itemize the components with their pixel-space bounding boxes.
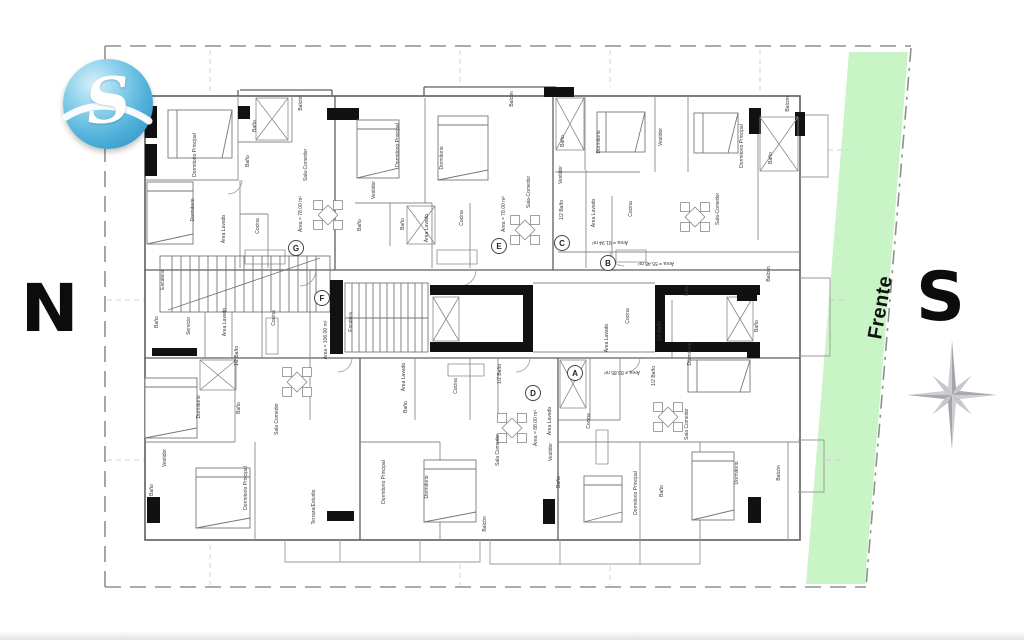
unit-area-label: Área = 55.48 m²: [638, 260, 674, 267]
unit-letter: F: [320, 294, 325, 303]
chair: [314, 220, 323, 229]
room-label: Área Lavado: [400, 363, 407, 392]
chair: [673, 403, 682, 412]
unit-area-label: Área = 78.00 m²: [500, 196, 507, 232]
room-label: Baño: [768, 152, 774, 164]
room-label: 1/2 Baño: [559, 200, 565, 220]
chair: [302, 368, 311, 377]
chair: [302, 387, 311, 396]
room-label: Dormitorio Principal: [381, 460, 387, 504]
compass-star-icon: [907, 340, 997, 450]
room-label: 1/2 Baño: [651, 366, 657, 386]
south-label: S: [916, 264, 965, 332]
room-label: Área Lavado: [603, 324, 610, 353]
room-label: Balcón: [482, 516, 488, 532]
room-label: Cocina: [625, 308, 631, 324]
chair: [681, 203, 690, 212]
unit-letter: B: [605, 259, 611, 268]
unit-area-label: Área = 106.00 m²: [322, 320, 329, 359]
room-label: Dormitorio: [734, 461, 740, 484]
room-label: Dormitorio: [687, 342, 693, 365]
room-label: Cocina: [255, 218, 261, 234]
room-label: Área Lavado: [423, 214, 430, 243]
room-label: Balcón: [785, 96, 791, 112]
room-label: Sala-Comedor: [303, 149, 309, 182]
frente-strip: [806, 52, 908, 584]
room-label: Cocina: [271, 310, 277, 326]
room-label: Baño: [252, 120, 258, 132]
bed-symbol: [597, 112, 645, 152]
room-label: Baño: [357, 219, 363, 231]
room-label: Vestidor: [162, 449, 168, 467]
chair: [517, 433, 526, 442]
room-label: Sala Comedor: [495, 434, 501, 466]
chair: [283, 387, 292, 396]
chair: [333, 201, 342, 210]
room-label: Escalera: [160, 270, 166, 290]
north-label: N: [21, 276, 79, 342]
room-label: Vestidor: [371, 181, 377, 199]
room-label: Sala Comedor: [684, 408, 690, 440]
chair: [517, 414, 526, 423]
room-label: Terraza/Estudio: [311, 489, 317, 524]
room-label: Dormitorio: [596, 130, 602, 153]
room-label: Vestidor: [658, 128, 664, 146]
room-label: Balcón: [766, 266, 772, 282]
bottom-fade: [0, 631, 1024, 640]
chair: [511, 216, 520, 225]
room-label: Cocina: [459, 210, 465, 226]
room-label: 1/2 Baño: [234, 346, 240, 366]
room-label: 1/2 Baño: [657, 321, 663, 341]
room-label: Dormitorio Principal: [192, 133, 198, 177]
room-label: Baño: [236, 402, 242, 414]
room-label: Servicio: [186, 317, 192, 335]
chair: [654, 422, 663, 431]
bed: [438, 116, 488, 180]
room-label: Dormitorio: [424, 475, 430, 498]
room-label: Dormitorio Principal: [243, 466, 249, 510]
bed: [168, 110, 232, 158]
bed: [694, 113, 738, 153]
chair: [511, 235, 520, 244]
room-label: Baño: [400, 218, 406, 230]
bed-symbol: [692, 452, 734, 520]
room-label: Cocina: [586, 413, 592, 429]
room-label: Vestidor: [548, 443, 554, 461]
room-label: Cocina: [453, 378, 459, 394]
bed: [584, 476, 622, 522]
unit-area-label: Área = 88.00 m²: [532, 410, 539, 446]
chair: [283, 368, 292, 377]
room-label: Baño: [403, 401, 409, 413]
room-label: Baño: [245, 155, 251, 167]
bed: [597, 112, 645, 152]
room-label: Balcón: [776, 465, 782, 481]
room-label: Dormitorio Principal: [395, 123, 401, 167]
room-label: Baño: [560, 135, 566, 147]
bed-symbol: [688, 360, 750, 392]
bed-symbol: [584, 476, 622, 522]
unit-area-label: Área = 78.00 m²: [297, 196, 304, 232]
unit-area-label: Área = 91.94 m²: [592, 239, 628, 246]
chair: [530, 216, 539, 225]
room-label: Dormitorio Principal: [739, 124, 745, 168]
room-label: 1/2 Baño: [497, 364, 503, 384]
unit-area-label: Área = 83.85 m²: [604, 369, 640, 376]
room-label: Cocina: [628, 201, 634, 217]
unit-letter: G: [293, 244, 299, 253]
chair: [700, 203, 709, 212]
room-label: Área Lavado: [590, 199, 597, 228]
bed-symbol: [168, 110, 232, 158]
room-label: Área Lavado: [220, 215, 227, 244]
room-label: Vestidor: [558, 166, 564, 184]
bed-symbol: [694, 113, 738, 153]
unit-letter: A: [572, 369, 578, 378]
chair: [314, 201, 323, 210]
chair: [681, 222, 690, 231]
bed-symbol: [147, 182, 193, 244]
logo-letter: S: [59, 51, 158, 150]
room-label: Baño: [154, 316, 160, 328]
chair: [333, 220, 342, 229]
floorplan-screenshot: BalcónBalcónBalcónDormitorio PrincipalDo…: [0, 0, 1024, 640]
room-label: Baño: [659, 485, 665, 497]
bed-symbol: [357, 120, 399, 178]
room-label: Dormitorio Principal: [633, 471, 639, 515]
room-label: Sala-Comedor: [715, 193, 721, 226]
bed-symbol: [145, 378, 197, 438]
room-label: Dormitorio: [196, 395, 202, 418]
room-label: Baño: [556, 476, 562, 488]
chair: [498, 414, 507, 423]
bed: [692, 452, 734, 520]
room-label: Dormitorio: [439, 146, 445, 169]
room-label: Sala: [684, 286, 690, 296]
room-label: Sala Comedor: [274, 403, 280, 435]
unit-letter: D: [530, 389, 536, 398]
logo-sphere: S: [63, 59, 153, 149]
chair: [654, 403, 663, 412]
unit-letter: E: [496, 242, 502, 251]
bed-symbol: [196, 468, 250, 528]
room-label: Dormitorio: [190, 198, 196, 221]
room-label: Área Lavado: [221, 308, 228, 337]
room-label: Balcón: [298, 95, 304, 111]
room-label: Balcón: [509, 91, 515, 107]
bed-symbol: [424, 460, 476, 522]
room-label: Baño: [754, 320, 760, 332]
unit-letter: C: [559, 239, 565, 248]
room-label: Área Lavado: [546, 407, 553, 436]
chair: [530, 235, 539, 244]
chair: [700, 222, 709, 231]
room-label: Baño: [149, 484, 155, 496]
bed-symbol: [438, 116, 488, 180]
room-label: Sala-Comedor: [526, 176, 532, 209]
chair: [673, 422, 682, 431]
room-label: Escalera: [348, 312, 354, 332]
